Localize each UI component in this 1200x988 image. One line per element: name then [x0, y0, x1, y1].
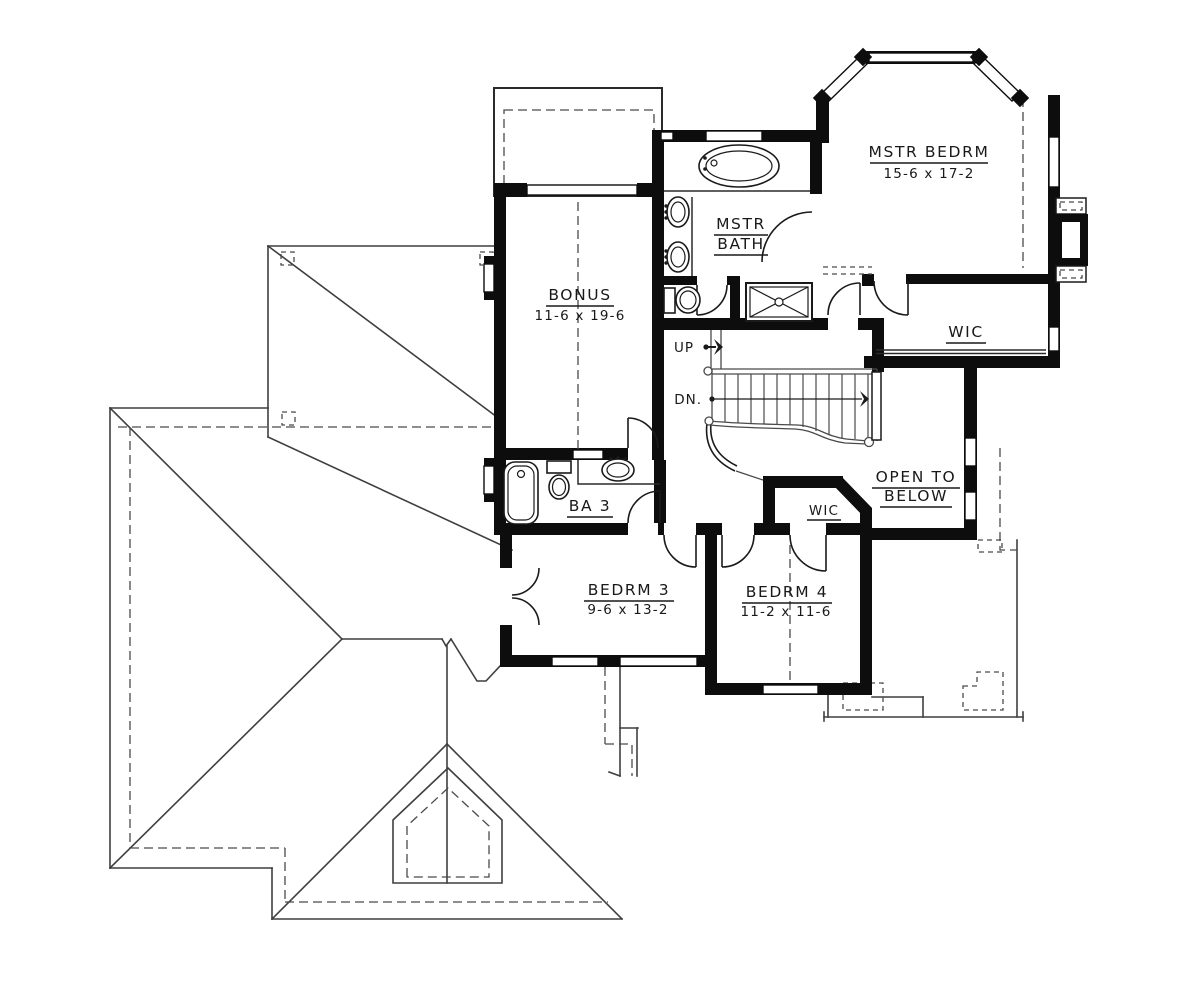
dim-bedroom3: 9-6 x 13-2: [587, 602, 668, 618]
label-bath3: BA 3: [569, 497, 611, 515]
stair-railing: [872, 372, 881, 440]
upper-floor-plan-drawing: MSTR BEDRM 15-6 x 17-2 MSTR BATH BONUS 1…: [0, 0, 1200, 988]
window-bath3-top: [573, 450, 603, 459]
door-arc-bedroom4: [722, 535, 754, 567]
chimney: [1054, 198, 1088, 282]
window-wic-right: [1049, 327, 1059, 351]
label-open-below-1: OPEN TO: [876, 468, 957, 486]
door-arc-closet-upper: [512, 568, 539, 595]
window-open-below-1: [965, 438, 976, 466]
door-arc-master-hall: [828, 283, 860, 315]
dim-bedroom4: 11-2 x 11-6: [740, 604, 831, 620]
label-open-below-2: BELOW: [884, 487, 948, 505]
dim-master-bedroom: 15-6 x 17-2: [883, 166, 974, 182]
label-master-bath-1: MSTR: [716, 215, 766, 233]
label-master-bath-2: BATH: [717, 235, 765, 253]
window-bonus-left: [484, 264, 494, 292]
window-open-below-2: [965, 492, 976, 520]
attic-storage-outline: [494, 88, 662, 196]
window-bedroom-right-upper: [1049, 137, 1059, 187]
stairs: [703, 330, 881, 447]
label-master-wic: WIC: [948, 323, 984, 341]
door-arc-master-bath: [762, 212, 812, 262]
label-bedroom4: BEDRM 4: [746, 583, 829, 601]
label-stairs-down: DN.: [674, 392, 702, 408]
window-bonus-top: [527, 185, 637, 195]
toilet-tank-master: [664, 288, 675, 313]
wic-shelf: [876, 350, 1046, 354]
dim-bonus: 11-6 x 19-6: [534, 308, 625, 324]
door-arc-closet-lower: [512, 598, 539, 625]
window-bath-top-small: [661, 132, 673, 140]
label-bedroom4-wic: WIC: [809, 503, 839, 519]
roof-plan: [110, 98, 1023, 919]
window-bedroom4: [763, 685, 818, 694]
labels: MSTR BEDRM 15-6 x 17-2 MSTR BATH BONUS 1…: [534, 143, 989, 620]
door-arc-bedroom3: [664, 535, 696, 567]
label-master-bedroom: MSTR BEDRM: [869, 143, 990, 161]
label-bedroom3: BEDRM 3: [588, 581, 671, 599]
window-bay-center: [869, 53, 973, 62]
floor-plan-page: MSTR BEDRM 15-6 x 17-2 MSTR BATH BONUS 1…: [0, 0, 1200, 988]
window-bath-top: [706, 131, 762, 141]
window-bedroom3-1: [552, 657, 598, 666]
toilet-tank-bath3: [547, 461, 571, 473]
window-bedroom3-2: [620, 657, 697, 666]
label-bonus: BONUS: [548, 286, 611, 304]
door-arc-toilet: [697, 285, 727, 315]
window-bath3-left: [484, 466, 494, 494]
door-arc-master-wic: [874, 281, 908, 315]
door-arc-wic-bedroom4: [790, 535, 826, 571]
label-stairs-up: UP: [674, 340, 694, 356]
